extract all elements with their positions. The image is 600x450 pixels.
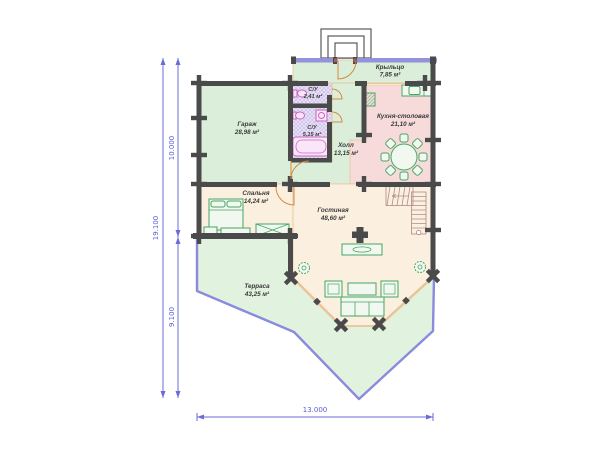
room-label-terrace: Терраса [244,283,270,290]
wall-bath-bottom [291,158,332,163]
wall-top-left [197,81,328,86]
floor-plan-svg: 19.100 10.000 9.100 13.000 Гараж 28,98 м… [0,0,600,450]
room-area-wc-large: 5,15 м² [303,131,322,138]
room-label-hall: Холл [337,142,354,149]
porch-post-1 [291,57,296,65]
room-area-terrace: 43,25 м² [244,291,270,298]
room-label-porch: Крыльцо [376,64,405,71]
wall-garage-right-upper [288,81,293,161]
stair-newel [417,230,421,234]
room-area-bedroom: 14,24 м² [244,198,269,205]
room-area-kitchen: 21,10 м² [390,121,416,128]
kitchen-sink [409,87,420,95]
armchair-left [325,281,342,297]
room-label-bedroom: Спальня [242,190,269,197]
fireplace-stack [357,227,364,243]
dim-label-lower: 9.100 [168,307,176,327]
room-area-hall: 13,15 м² [334,150,359,157]
armchair-right [381,281,398,297]
toilet-tank [293,90,297,97]
shower-drain [319,113,325,119]
wall-mid-center [293,182,330,187]
room-porch-floor [293,60,433,83]
pillow-right [227,201,241,207]
porch-glazing-left [293,58,338,63]
dim-label-total-height: 19.100 [152,216,160,241]
washbasin [296,112,305,119]
pillow-left [211,201,225,207]
room-label-garage: Гараж [237,121,257,128]
floor-plan-page: 19.100 10.000 9.100 13.000 Гараж 28,98 м… [0,0,600,450]
room-label-kitchen: Кухня-столовая [377,113,429,120]
room-area-wc-small: 2,41 м² [303,93,323,100]
plant-right [415,262,426,273]
wall-mid-left [197,182,277,187]
room-area-porch: 7,85 м² [380,72,402,79]
door-jamb-left [334,59,337,63]
hearth [342,244,382,255]
room-area-garage: 28,98 м² [234,129,260,136]
dim-label-upper: 10.000 [168,136,176,161]
room-label-living: Гостиная [317,207,349,214]
entrance-steps [321,29,371,58]
wall-bath-right-lower [327,122,332,162]
dining-table [391,144,417,170]
room-area-living: 48,60 м² [320,215,346,222]
room-label-wc-large: С/У [307,125,318,131]
sofa [341,297,384,316]
coffee-table [348,283,376,295]
room-label-wc-small: С/У [308,87,319,93]
dim-label-width: 13.000 [303,406,328,414]
wall-bath-divider [291,104,332,109]
porch-glazing-right [353,58,437,63]
wall-bedroom-bottom [193,233,297,239]
plant-left [299,263,310,274]
